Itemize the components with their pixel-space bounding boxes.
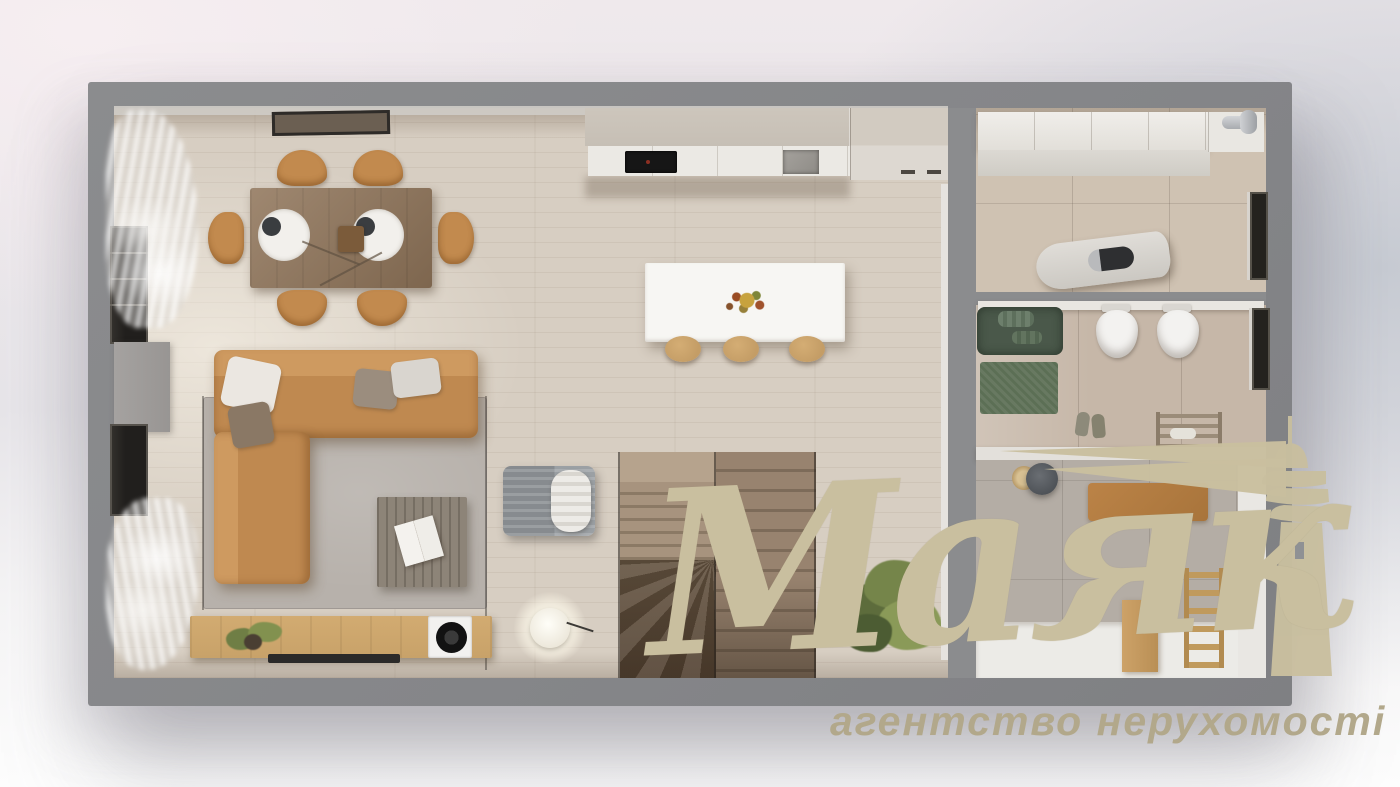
- floor-plan-render: Маяк агентство нерухомості: [0, 0, 1400, 787]
- watermark-tagline: агентство нерухомості: [830, 698, 1350, 744]
